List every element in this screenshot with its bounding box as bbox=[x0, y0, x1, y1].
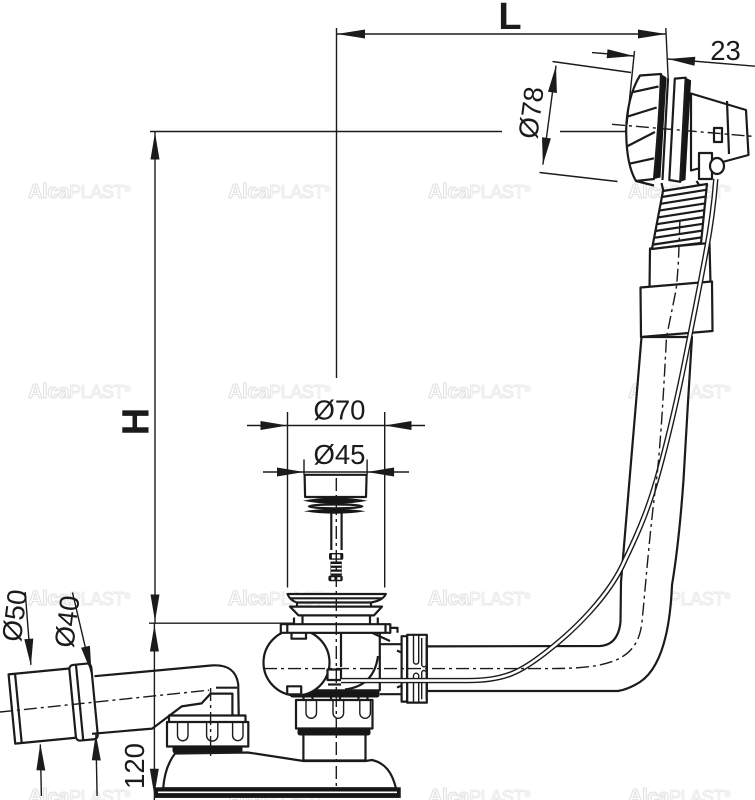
svg-text:120: 120 bbox=[119, 743, 150, 789]
svg-text:Ø78: Ø78 bbox=[512, 85, 550, 141]
svg-text:Ø70: Ø70 bbox=[314, 395, 366, 426]
svg-text:Ø45: Ø45 bbox=[314, 439, 366, 470]
svg-text:H: H bbox=[116, 408, 158, 435]
svg-text:23: 23 bbox=[710, 35, 741, 66]
svg-text:L: L bbox=[498, 0, 521, 38]
